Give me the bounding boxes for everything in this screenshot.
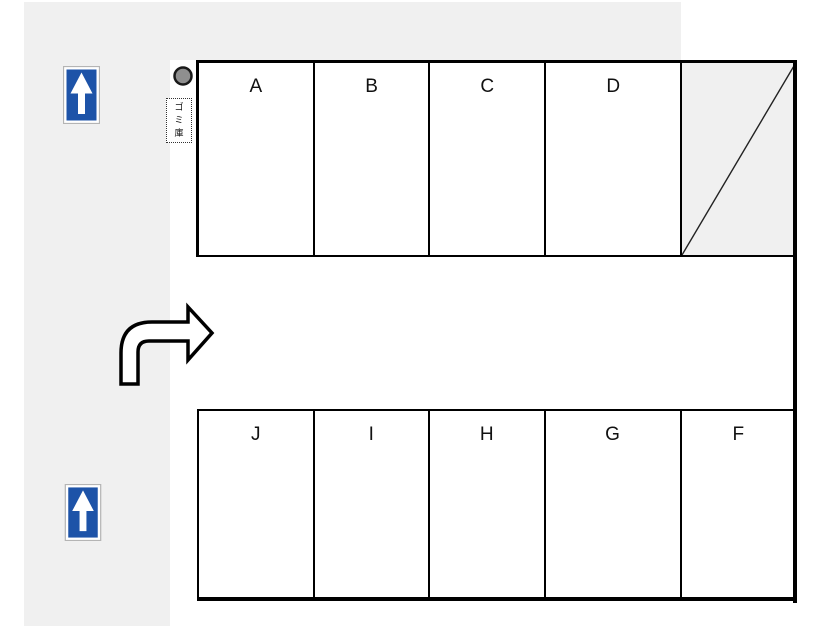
parking-space-h: H <box>430 411 546 597</box>
pole-circle-icon <box>172 65 194 87</box>
space-label: B <box>365 76 378 97</box>
garbage-storage-char: 庫 <box>174 127 183 140</box>
parking-space-i: I <box>315 411 431 597</box>
garbage-storage-char: ミ <box>174 114 183 127</box>
parking-space-d: D <box>546 63 682 255</box>
turn-right-arrow-icon <box>108 293 220 393</box>
parking-space-b: B <box>315 63 431 255</box>
parking-space-a: A <box>199 63 315 255</box>
parking-lot-diagram: ゴ ミ 庫 A B C D J I <box>0 0 835 629</box>
right-boundary-wall <box>793 60 797 603</box>
space-label: A <box>250 76 263 97</box>
space-label: I <box>369 424 374 445</box>
parking-space-f: F <box>682 411 796 597</box>
space-label: F <box>732 424 744 445</box>
space-label: C <box>480 76 494 97</box>
parking-row-bottom: J I H G F <box>197 409 795 601</box>
parking-space-j: J <box>199 411 315 597</box>
one-way-sign-top <box>63 66 100 124</box>
space-label: G <box>605 424 620 445</box>
diagonal-cross-line-icon <box>682 63 796 255</box>
garbage-storage-char: ゴ <box>174 101 183 114</box>
parking-row-top: A B C D <box>196 60 796 257</box>
one-way-up-arrow-icon <box>64 484 102 541</box>
parking-space-g: G <box>546 411 682 597</box>
one-way-up-arrow-icon <box>63 66 100 124</box>
space-label: J <box>251 424 261 445</box>
space-label: D <box>606 76 620 97</box>
space-label: H <box>480 424 494 445</box>
one-way-sign-bottom <box>64 484 102 541</box>
parking-space-crossed <box>682 63 796 255</box>
parking-space-c: C <box>430 63 546 255</box>
garbage-storage-box: ゴ ミ 庫 <box>166 98 192 143</box>
